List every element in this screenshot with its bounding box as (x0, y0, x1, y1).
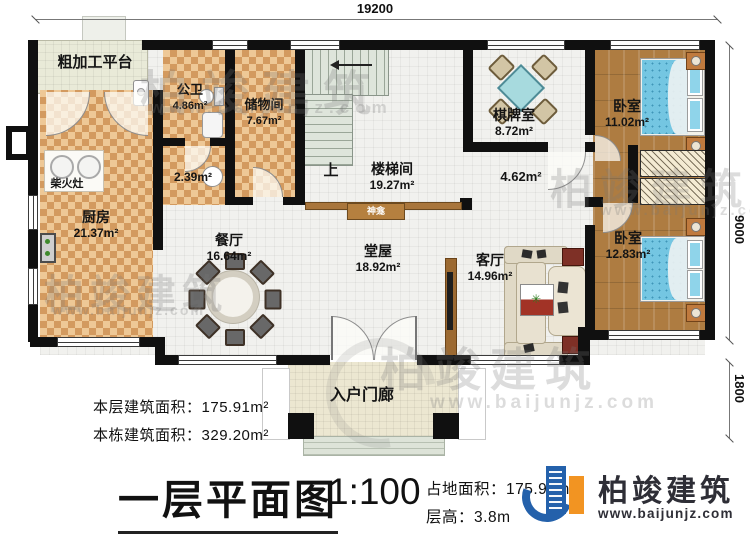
wall (585, 197, 603, 207)
window (28, 195, 38, 230)
window (470, 355, 560, 365)
window (487, 40, 565, 50)
wardrobe-icon (640, 150, 706, 177)
storey-height-line: 层高：3.8m (426, 505, 510, 527)
wall (585, 40, 595, 135)
wall (248, 40, 290, 50)
dimension-right-porch: 1800 (732, 374, 747, 403)
floor-area-line: 本层建筑面积：175.91m² (93, 396, 269, 417)
dimension-line (35, 19, 718, 20)
logo-windows (549, 471, 562, 509)
wall (30, 337, 57, 347)
stove-burner-icon (50, 155, 74, 179)
window (610, 40, 700, 50)
wardrobe-icon (640, 178, 706, 205)
wall (277, 355, 330, 365)
room-label-bathroom: 公卫4.86m² (173, 82, 208, 113)
brand-logo-icon (522, 464, 592, 528)
chair-icon (189, 290, 206, 310)
shrine-label: 神龛 (367, 206, 385, 216)
wall (155, 355, 178, 365)
window (57, 337, 140, 347)
room-label-mahjong: 棋牌室8.72m² (493, 106, 535, 140)
pillow-icon (688, 241, 702, 268)
corridor-area-bed: 4.62m² (500, 169, 541, 186)
room-label-bedroom2: 卧室12.83m² (606, 229, 651, 263)
shrine-box: 神龛 (347, 203, 405, 220)
shower-tray-icon (202, 112, 223, 138)
window (290, 40, 340, 50)
stair-lower-run (303, 94, 353, 166)
wall (225, 50, 235, 140)
nightstand-icon (686, 52, 706, 70)
plan-scale: 1:100 (328, 471, 421, 513)
room-label-living: 客厅14.96m² (468, 251, 513, 285)
wall (463, 40, 473, 148)
nightstand-icon (686, 218, 706, 236)
pillow-icon (688, 271, 702, 298)
room-label-bedroom1: 卧室11.02m² (605, 97, 649, 131)
room-label-hall: 堂屋18.92m² (356, 242, 401, 276)
dimension-line (729, 362, 730, 438)
stair-arrow-head (330, 60, 339, 70)
wall (153, 90, 163, 250)
building-area-line: 本栋建筑面积：329.20m² (93, 424, 269, 445)
side-table (562, 248, 584, 266)
stairs-up-label: 上 (323, 161, 338, 181)
porch-column (288, 413, 314, 439)
gas-stove-icon (40, 233, 56, 263)
plant-icon: ✳ (531, 293, 543, 305)
wall (463, 142, 548, 152)
toilet-tank (214, 87, 224, 106)
burner-dot (45, 251, 50, 256)
nightstand-icon (686, 304, 706, 322)
stove-burner-icon (77, 155, 101, 179)
wall (163, 138, 185, 146)
wall (700, 330, 715, 340)
brand-website: www.baijunjz.com (598, 506, 734, 521)
cushion (557, 282, 568, 294)
corridor-area-bath: 2.39m² (174, 170, 212, 186)
window (212, 40, 248, 50)
bed-sheet (668, 60, 688, 134)
tv-icon (447, 272, 453, 330)
cushion (521, 249, 532, 259)
chimney-inner (12, 132, 26, 154)
room-label-platform: 粗加工平台 (57, 53, 132, 73)
window (178, 355, 277, 365)
stair-upper-run (303, 48, 389, 96)
room-label-stairwell: 楼梯间19.27m² (370, 160, 415, 194)
dimension-top: 19200 (0, 1, 750, 16)
dimension-line (729, 45, 730, 340)
chair-icon (265, 290, 282, 310)
logo-building-blue (546, 466, 566, 514)
dimension-right-main: 9000 (732, 215, 747, 244)
brand-name: 柏竣建筑 (598, 466, 734, 510)
window (28, 268, 38, 305)
floor-plan-canvas: 神龛 (0, 0, 750, 539)
wall (225, 197, 253, 205)
porch-side-right (458, 368, 486, 440)
cushion (536, 249, 546, 258)
wall (225, 140, 235, 205)
wall (585, 225, 595, 335)
wall (142, 40, 212, 50)
dining-table (207, 271, 259, 323)
room-label-kitchen: 厨房21.37m² (74, 208, 119, 242)
chair-icon (225, 329, 245, 346)
wall (585, 142, 595, 152)
stove-label: 柴火灶 (51, 177, 84, 191)
room-label-storage: 储物间7.67m² (244, 97, 283, 128)
wall (295, 50, 305, 205)
plan-title: 一层平面图 (118, 466, 338, 534)
wall (28, 40, 38, 195)
wall (705, 40, 715, 340)
porch-column (433, 413, 459, 439)
wall (28, 230, 38, 268)
room-label-dining: 餐厅16.64m² (207, 231, 252, 265)
window (608, 330, 700, 340)
wall (210, 138, 235, 146)
stair-arrow-line (338, 64, 372, 66)
bed-sheet (668, 238, 688, 300)
entry-door-leaf (331, 316, 333, 360)
logo-building-orange (569, 476, 584, 514)
burner-dot (45, 239, 50, 244)
wall (628, 145, 638, 203)
pillow-icon (688, 99, 702, 131)
cushion (557, 302, 568, 314)
